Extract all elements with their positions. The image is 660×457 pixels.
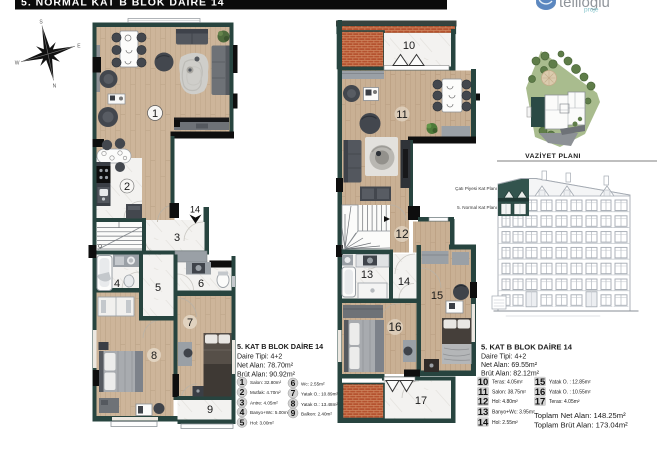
svg-text:VAZİYET PLANI: VAZİYET PLANI <box>525 152 581 160</box>
svg-text:Net Alan: 78.70m²: Net Alan: 78.70m² <box>237 363 294 370</box>
svg-text:Çatı Piyesi Kat Planı: Çatı Piyesi Kat Planı <box>455 186 497 191</box>
svg-text:N: N <box>53 83 57 89</box>
svg-text:W: W <box>15 61 20 67</box>
svg-text:3: 3 <box>240 397 245 407</box>
svg-text:10: 10 <box>403 40 415 52</box>
svg-text:1: 1 <box>152 108 158 120</box>
svg-text:7: 7 <box>291 388 296 398</box>
svg-text:8: 8 <box>151 350 157 362</box>
svg-text:Hol: 2.55m²: Hol: 2.55m² <box>492 420 518 426</box>
svg-text:4: 4 <box>240 407 245 417</box>
svg-text:12: 12 <box>478 397 489 408</box>
svg-text:Balkon: 2.40m²: Balkon: 2.40m² <box>301 411 332 416</box>
svg-text:17: 17 <box>535 397 546 408</box>
svg-text:Net Alan: 69.55m²: Net Alan: 69.55m² <box>481 362 538 369</box>
svg-text:Salon: 32.80m²: Salon: 32.80m² <box>250 380 282 385</box>
svg-text:9: 9 <box>291 408 296 418</box>
svg-text:1: 1 <box>240 377 245 387</box>
svg-text:Yatak O. : 12.85m²: Yatak O. : 12.85m² <box>549 379 591 385</box>
svg-text:Brüt Alan: 90.92m²: Brüt Alan: 90.92m² <box>237 372 296 379</box>
svg-text:Mutfak: 4.70m²: Mutfak: 4.70m² <box>250 390 281 395</box>
svg-text:Brüt Alan: 82.12m²: Brüt Alan: 82.12m² <box>481 371 540 378</box>
svg-text:15: 15 <box>431 290 443 302</box>
svg-text:5: 5 <box>240 417 245 427</box>
svg-text:Toplam Net Alan: 148.25m²: Toplam Net Alan: 148.25m² <box>534 411 626 420</box>
svg-text:4: 4 <box>114 278 120 290</box>
svg-text:3: 3 <box>174 232 180 244</box>
svg-text:Antre: 4.05m²: Antre: 4.05m² <box>250 400 278 405</box>
svg-text:Salon: 38.75m²: Salon: 38.75m² <box>492 390 526 396</box>
svg-text:5: 5 <box>155 282 161 294</box>
svg-text:Yatak O. : 10.55m²: Yatak O. : 10.55m² <box>549 390 591 396</box>
svg-text:5. KAT B BLOK DAİRE 14: 5. KAT B BLOK DAİRE 14 <box>237 342 323 351</box>
svg-text:2: 2 <box>124 181 130 193</box>
svg-text:Daire Tipi: 4+2: Daire Tipi: 4+2 <box>237 354 282 361</box>
svg-text:Banyo+Wc: 3.95m²: Banyo+Wc: 3.95m² <box>492 410 535 416</box>
svg-text:16: 16 <box>388 320 402 334</box>
svg-text:Yatak O.: 13.48m²: Yatak O.: 13.48m² <box>301 402 338 407</box>
svg-text:12: 12 <box>395 227 409 241</box>
svg-text:11: 11 <box>396 109 407 121</box>
svg-text:9: 9 <box>207 404 213 416</box>
svg-text:Toplam Brüt Alan: 173.04m²: Toplam Brüt Alan: 173.04m² <box>534 421 628 430</box>
svg-text:Teras: 4.05m²: Teras: 4.05m² <box>549 399 580 405</box>
svg-text:8: 8 <box>291 398 296 408</box>
svg-text:Wc: 2.55m²: Wc: 2.55m² <box>301 381 325 386</box>
svg-text:Yatak O.: 10.89m²: Yatak O.: 10.89m² <box>301 392 338 397</box>
svg-text:2: 2 <box>240 387 245 397</box>
svg-text:5. KAT B BLOK DAİRE 14: 5. KAT B BLOK DAİRE 14 <box>481 343 573 352</box>
svg-text:Banyo+Wc: 5.00m²: Banyo+Wc: 5.00m² <box>250 410 290 415</box>
svg-text:5. NORMAL KAT B BLOK DAİRE 14: 5. NORMAL KAT B BLOK DAİRE 14 <box>21 0 225 9</box>
svg-text:Hol: 4.80m²: Hol: 4.80m² <box>492 399 518 405</box>
svg-text:7: 7 <box>187 317 193 329</box>
svg-text:6: 6 <box>198 278 204 290</box>
svg-text:Hol: 3.00m²: Hol: 3.00m² <box>250 420 274 425</box>
svg-text:6: 6 <box>291 378 296 388</box>
svg-text:17: 17 <box>415 395 427 407</box>
svg-text:14: 14 <box>190 205 200 215</box>
svg-text:Teras: 4.05m²: Teras: 4.05m² <box>492 379 523 385</box>
svg-text:Daire Tipi: 4+2: Daire Tipi: 4+2 <box>481 354 526 361</box>
svg-text:5. Normal Kat Planı: 5. Normal Kat Planı <box>457 205 497 210</box>
svg-text:14: 14 <box>478 417 489 428</box>
svg-text:14: 14 <box>398 276 410 288</box>
svg-text:proje: proje <box>584 7 599 14</box>
svg-text:13: 13 <box>361 269 373 281</box>
